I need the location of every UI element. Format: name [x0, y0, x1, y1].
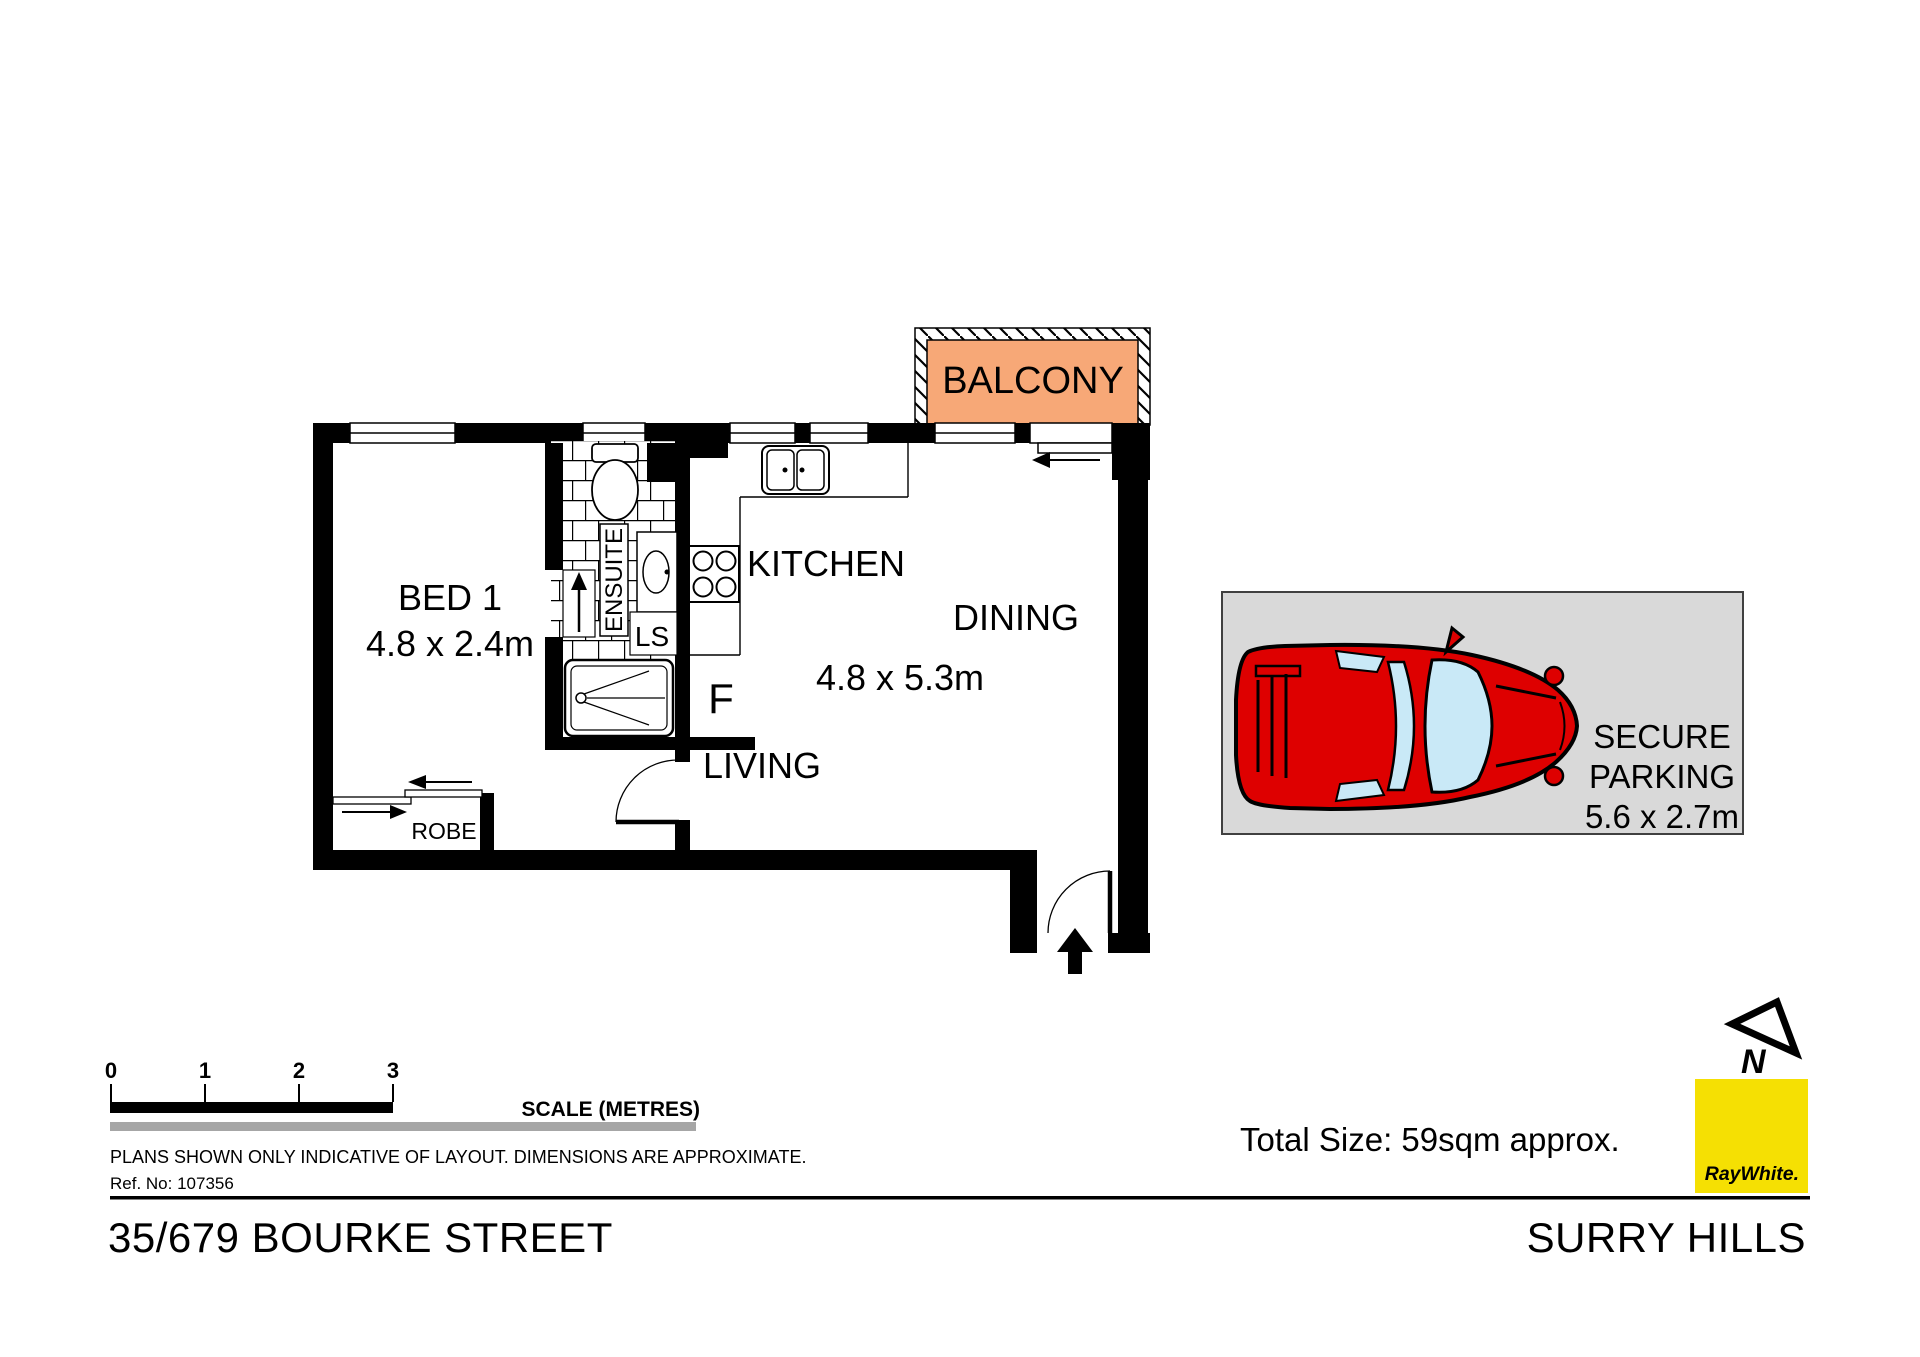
robe-arrow-right — [342, 805, 407, 819]
basin — [637, 532, 677, 612]
car-windshield — [1425, 660, 1492, 793]
scale-tick-marks — [111, 1084, 393, 1102]
sink — [762, 446, 829, 494]
window-ensuite — [583, 423, 645, 443]
disclaimer-text: PLANS SHOWN ONLY INDICATIVE OF LAYOUT. D… — [110, 1147, 806, 1167]
footer-divider — [110, 1196, 1810, 1200]
window-bed — [350, 423, 455, 443]
linen-shelf-label: LS — [635, 621, 669, 652]
parking-text: SECURE PARKING 5.6 x 2.7m — [1585, 718, 1739, 835]
stove — [689, 546, 739, 602]
secure-parking: SECURE PARKING 5.6 x 2.7m — [1222, 592, 1743, 835]
parking-line2: PARKING — [1589, 758, 1735, 795]
entry-door-swing-arc — [1048, 871, 1110, 933]
living-dims: 4.8 x 5.3m — [816, 657, 984, 698]
robe-slider-panel-left — [333, 797, 411, 804]
parking-line1: SECURE — [1593, 718, 1731, 755]
footer: Total Size: 59sqm approx. 35/679 BOURKE … — [108, 1121, 1810, 1261]
dining-label: DINING — [953, 597, 1079, 638]
bed1-dims: 4.8 x 2.4m — [366, 623, 534, 664]
wall-entry-right-foot — [1108, 933, 1150, 953]
robe: ROBE — [333, 775, 494, 850]
suburb-text: SURRY HILLS — [1527, 1214, 1806, 1261]
balcony-door-arrow — [1032, 452, 1100, 468]
kitchen-label: KITCHEN — [747, 543, 905, 584]
window-kitchen-1 — [730, 423, 795, 443]
balcony-sliding-door — [1030, 423, 1112, 453]
scale-gray-rule — [110, 1122, 696, 1131]
robe-wall-stub — [480, 793, 494, 850]
entry-door — [1048, 871, 1110, 974]
logo-text: RayWhite. — [1705, 1163, 1799, 1185]
floorplan-page: BALCONY — [0, 0, 1920, 1357]
bedroom-door-swing-arc — [616, 760, 679, 822]
living-label: LIVING — [703, 745, 821, 786]
car-headlight-bottom — [1545, 767, 1563, 785]
scale-label: SCALE (METRES) — [522, 1098, 701, 1121]
window-dining — [935, 423, 1015, 443]
fridge-label: F — [708, 675, 734, 722]
robe-slider-panel-right — [405, 790, 482, 797]
car-headlight-top — [1545, 667, 1563, 685]
toilet — [592, 444, 638, 520]
ensuite-label: ENSUITE — [601, 528, 628, 632]
bed1-label: BED 1 — [398, 577, 502, 618]
scale-tick-3: 3 — [387, 1058, 399, 1083]
scale-bar-rule — [110, 1102, 393, 1113]
wall-right — [1118, 423, 1148, 953]
wall-bottom — [313, 850, 1037, 870]
north-arrow: N — [1732, 1002, 1799, 1081]
address-text: 35/679 BOURKE STREET — [108, 1214, 613, 1261]
bedroom-door — [616, 750, 690, 852]
north-label: N — [1741, 1043, 1767, 1081]
robe-label: ROBE — [411, 818, 476, 844]
agency-logo: RayWhite. — [1695, 1079, 1808, 1193]
entry-arrow — [1057, 928, 1093, 974]
shower — [565, 660, 673, 736]
scale-bar: 0 1 2 3 SCALE (METRES) — [105, 1058, 700, 1131]
notes: PLANS SHOWN ONLY INDICATIVE OF LAYOUT. D… — [110, 1147, 806, 1193]
scale-tick-0: 0 — [105, 1058, 117, 1083]
total-size-text: Total Size: 59sqm approx. — [1240, 1121, 1620, 1158]
wall-left — [313, 423, 333, 870]
scale-tick-2: 2 — [293, 1058, 305, 1083]
parking-dims: 5.6 x 2.7m — [1585, 798, 1739, 835]
window-kitchen-2 — [810, 423, 868, 443]
scale-tick-1: 1 — [199, 1058, 211, 1083]
robe-arrow-left — [408, 775, 472, 789]
wall-top-right-corner — [1112, 423, 1150, 480]
balcony-label: BALCONY — [942, 360, 1124, 402]
balcony: BALCONY — [915, 328, 1150, 425]
ref-number: Ref. No: 107356 — [110, 1174, 234, 1193]
wall-entry-left-jamb — [1010, 850, 1037, 953]
floorplan-canvas: BALCONY — [0, 0, 1920, 1357]
